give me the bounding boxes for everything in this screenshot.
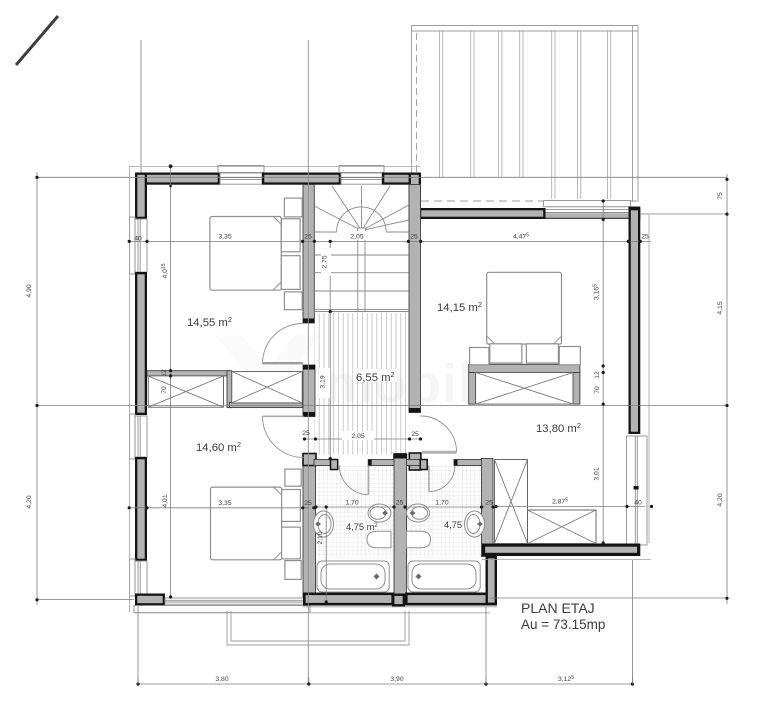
svg-text:PLAN ETAJ: PLAN ETAJ [521,600,595,616]
svg-text:14,55 m2: 14,55 m2 [187,315,232,329]
svg-text:14,60 m2: 14,60 m2 [196,440,241,454]
svg-text:14,15 m2: 14,15 m2 [437,300,482,314]
svg-text:2,05: 2,05 [351,433,364,440]
svg-text:2,05: 2,05 [350,234,363,241]
svg-text:3,35: 3,35 [218,500,231,507]
svg-text:3,01: 3,01 [594,467,601,480]
svg-text:3,80: 3,80 [215,676,228,683]
svg-text:4,15: 4,15 [717,301,724,314]
svg-text:3,90: 3,90 [390,676,403,683]
svg-text:13,80 m2: 13,80 m2 [536,421,581,435]
svg-text:25: 25 [304,500,312,507]
svg-text:2,75: 2,75 [322,255,329,268]
svg-text:4,20: 4,20 [26,495,33,508]
svg-text:6,55 m2: 6,55 m2 [356,370,395,384]
svg-text:25: 25 [396,500,404,507]
svg-text:2,10: 2,10 [317,531,324,544]
svg-text:25: 25 [411,431,419,438]
svg-text:1,70: 1,70 [345,500,358,507]
svg-text:4,75 m2: 4,75 m2 [346,522,378,532]
svg-text:75: 75 [717,192,724,200]
svg-text:70: 70 [594,386,601,394]
svg-text:1,70: 1,70 [435,500,448,507]
svg-text:Au = 73.15mp: Au = 73.15mp [521,617,605,632]
svg-text:40: 40 [634,500,642,507]
svg-text:4,75: 4,75 [444,520,462,530]
svg-text:3,19: 3,19 [320,375,327,388]
svg-text:4,20: 4,20 [717,493,724,506]
svg-text:40: 40 [134,236,142,243]
svg-text:25: 25 [485,500,493,507]
svg-text:70: 70 [161,386,168,394]
svg-text:4,90: 4,90 [26,284,33,297]
svg-text:25: 25 [410,234,418,241]
svg-text:12: 12 [594,371,601,379]
svg-text:3,35: 3,35 [218,234,231,241]
svg-text:12: 12 [161,369,168,377]
svg-text:25: 25 [302,430,310,437]
svg-text:25: 25 [304,234,312,241]
svg-text:25: 25 [641,234,649,241]
svg-text:4,01: 4,01 [162,494,169,507]
